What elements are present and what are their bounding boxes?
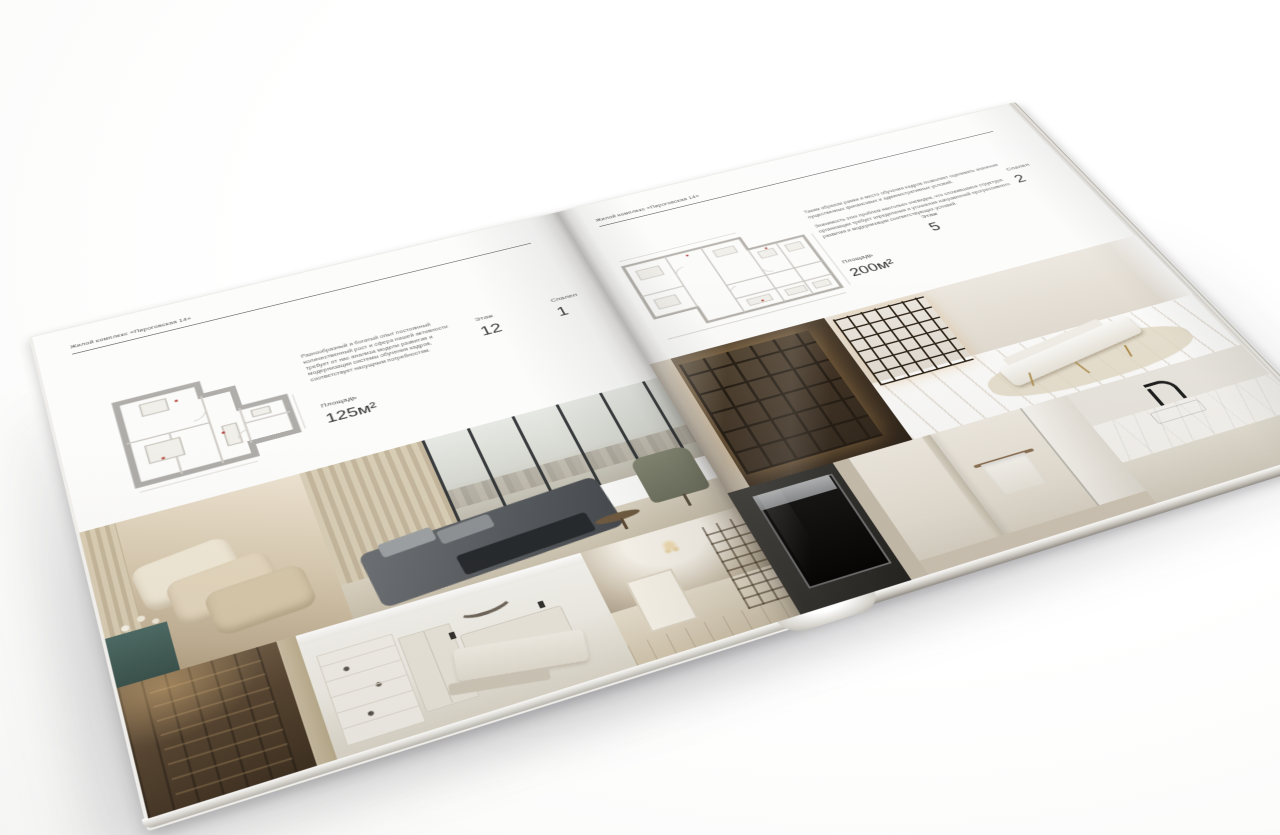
right-floor-value: 5 [926, 218, 952, 234]
left-description: Разнообразный и богатый опыт постоянный … [300, 318, 461, 384]
photo-backdrop: Жилой комплекс «Пироговская 14» [0, 0, 1280, 835]
left-header-title: Жилой комплекс «Пироговская 14» [70, 236, 529, 350]
left-bedrooms-value: 1 [554, 300, 588, 320]
right-spec-floor: Этаж 5 [919, 211, 951, 234]
magazine-spread: Жилой комплекс «Пироговская 14» [32, 105, 1280, 819]
left-header-rule [72, 243, 531, 355]
left-page-header: Жилой комплекс «Пироговская 14» [70, 236, 531, 355]
right-spec-area: Площадь 200м² [841, 249, 899, 280]
left-spec-area: Площадь 125м² [320, 390, 380, 427]
left-spec-floor: Этаж 12 [473, 312, 505, 339]
left-floor-value: 12 [478, 321, 505, 339]
left-spec-bedrooms: Спален 1 [549, 292, 587, 320]
open-spread: Жилой комплекс «Пироговская 14» [32, 105, 1280, 819]
